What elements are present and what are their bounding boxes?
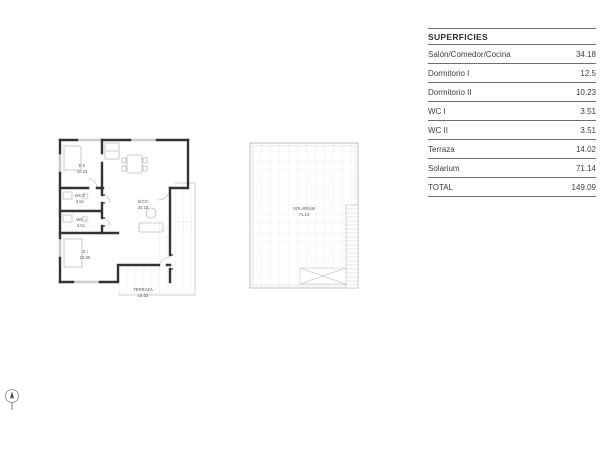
surfaces-table: SUPERFICIES Salón/Comedor/Cocina 34.18 D… — [428, 28, 596, 197]
row-label: WC I — [428, 107, 446, 116]
room-label-salon: S/C/C — [137, 199, 148, 204]
room-area-wc2: 3.51 — [76, 199, 85, 204]
room-area-d1: 12.50 — [80, 255, 91, 260]
room-label-d1: D I — [82, 249, 87, 254]
row-label: Dormitorio II — [428, 88, 472, 97]
room-area-salon: 34.18 — [138, 205, 149, 210]
row-value: 14.02 — [576, 145, 596, 154]
table-row-total: TOTAL 149.09 — [428, 178, 596, 197]
row-value: 71.14 — [576, 164, 596, 173]
room-area-wc1: 3.51 — [77, 223, 86, 228]
floor-plan-apartment: D II 10.23 WC II 3.51 WC I 3.51 D I 12.5… — [55, 133, 200, 308]
north-arrow-icon — [2, 383, 26, 415]
table-row: Solarium 71.14 — [428, 159, 596, 178]
room-area-terraza: 14.02 — [138, 293, 149, 298]
room-label-wc2: WC II — [75, 193, 85, 198]
row-value: 3.51 — [580, 126, 596, 135]
room-label-terraza: TERRAZA — [133, 287, 153, 292]
row-label: TOTAL — [428, 183, 453, 192]
row-value: 149.09 — [572, 183, 596, 192]
stairs — [346, 205, 358, 288]
row-label: WC II — [428, 126, 448, 135]
row-label: Dormitorio I — [428, 69, 469, 78]
table-row: Salón/Comedor/Cocina 34.18 — [428, 45, 596, 64]
row-value: 3.51 — [580, 107, 596, 116]
stair-opening — [300, 268, 346, 284]
table-row: Dormitorio I 12.5 — [428, 64, 596, 83]
row-value: 12.5 — [580, 69, 596, 78]
room-label-wc1: WC I — [76, 217, 85, 222]
table-row: Dormitorio II 10.23 — [428, 83, 596, 102]
row-label: Terraza — [428, 145, 455, 154]
terraza-tiles — [118, 183, 195, 295]
table-row: Terraza 14.02 — [428, 140, 596, 159]
row-value: 34.18 — [576, 50, 596, 59]
room-area-solarium: 71.14 — [299, 212, 310, 217]
table-row: WC II 3.51 — [428, 121, 596, 140]
row-value: 10.23 — [576, 88, 596, 97]
row-label: Solarium — [428, 164, 460, 173]
room-area-d2: 10.23 — [77, 169, 88, 174]
room-label-solarium: SOLARIUM — [293, 206, 315, 211]
row-label: Salón/Comedor/Cocina — [428, 50, 511, 59]
floor-plan-solarium: SOLARIUM 71.14 — [243, 133, 368, 293]
room-label-d2: D II — [79, 163, 86, 168]
table-row: WC I 3.51 — [428, 102, 596, 121]
surfaces-table-title: SUPERFICIES — [428, 29, 596, 45]
